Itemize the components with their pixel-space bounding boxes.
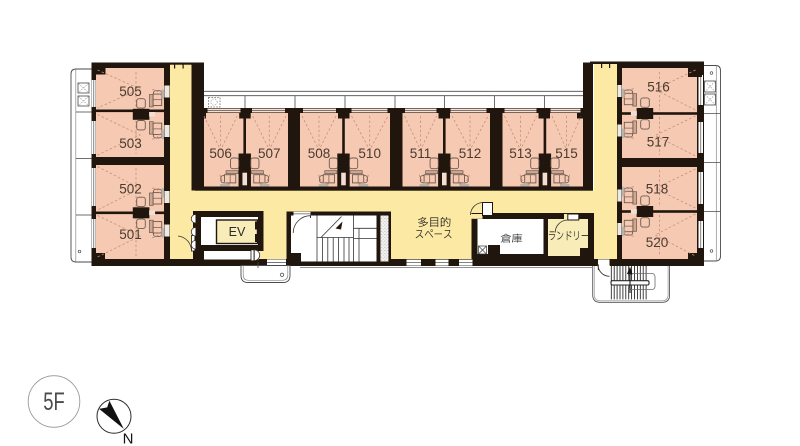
svg-text:501: 501 xyxy=(119,227,142,242)
svg-text:512: 512 xyxy=(459,146,482,161)
svg-text:513: 513 xyxy=(509,146,532,161)
svg-text:508: 508 xyxy=(308,146,331,161)
svg-text:510: 510 xyxy=(358,146,381,161)
svg-text:502: 502 xyxy=(119,182,142,197)
svg-text:518: 518 xyxy=(646,182,669,197)
svg-text:511: 511 xyxy=(410,146,432,161)
svg-text:503: 503 xyxy=(119,136,142,151)
svg-text:517: 517 xyxy=(647,135,670,150)
svg-text:505: 505 xyxy=(119,84,142,99)
svg-text:506: 506 xyxy=(209,146,232,161)
svg-text:EV: EV xyxy=(229,225,246,239)
svg-text:520: 520 xyxy=(646,235,669,250)
svg-text:5F: 5F xyxy=(43,388,65,416)
svg-text:N: N xyxy=(123,431,134,446)
svg-text:507: 507 xyxy=(258,146,281,161)
svg-text:516: 516 xyxy=(647,80,670,95)
